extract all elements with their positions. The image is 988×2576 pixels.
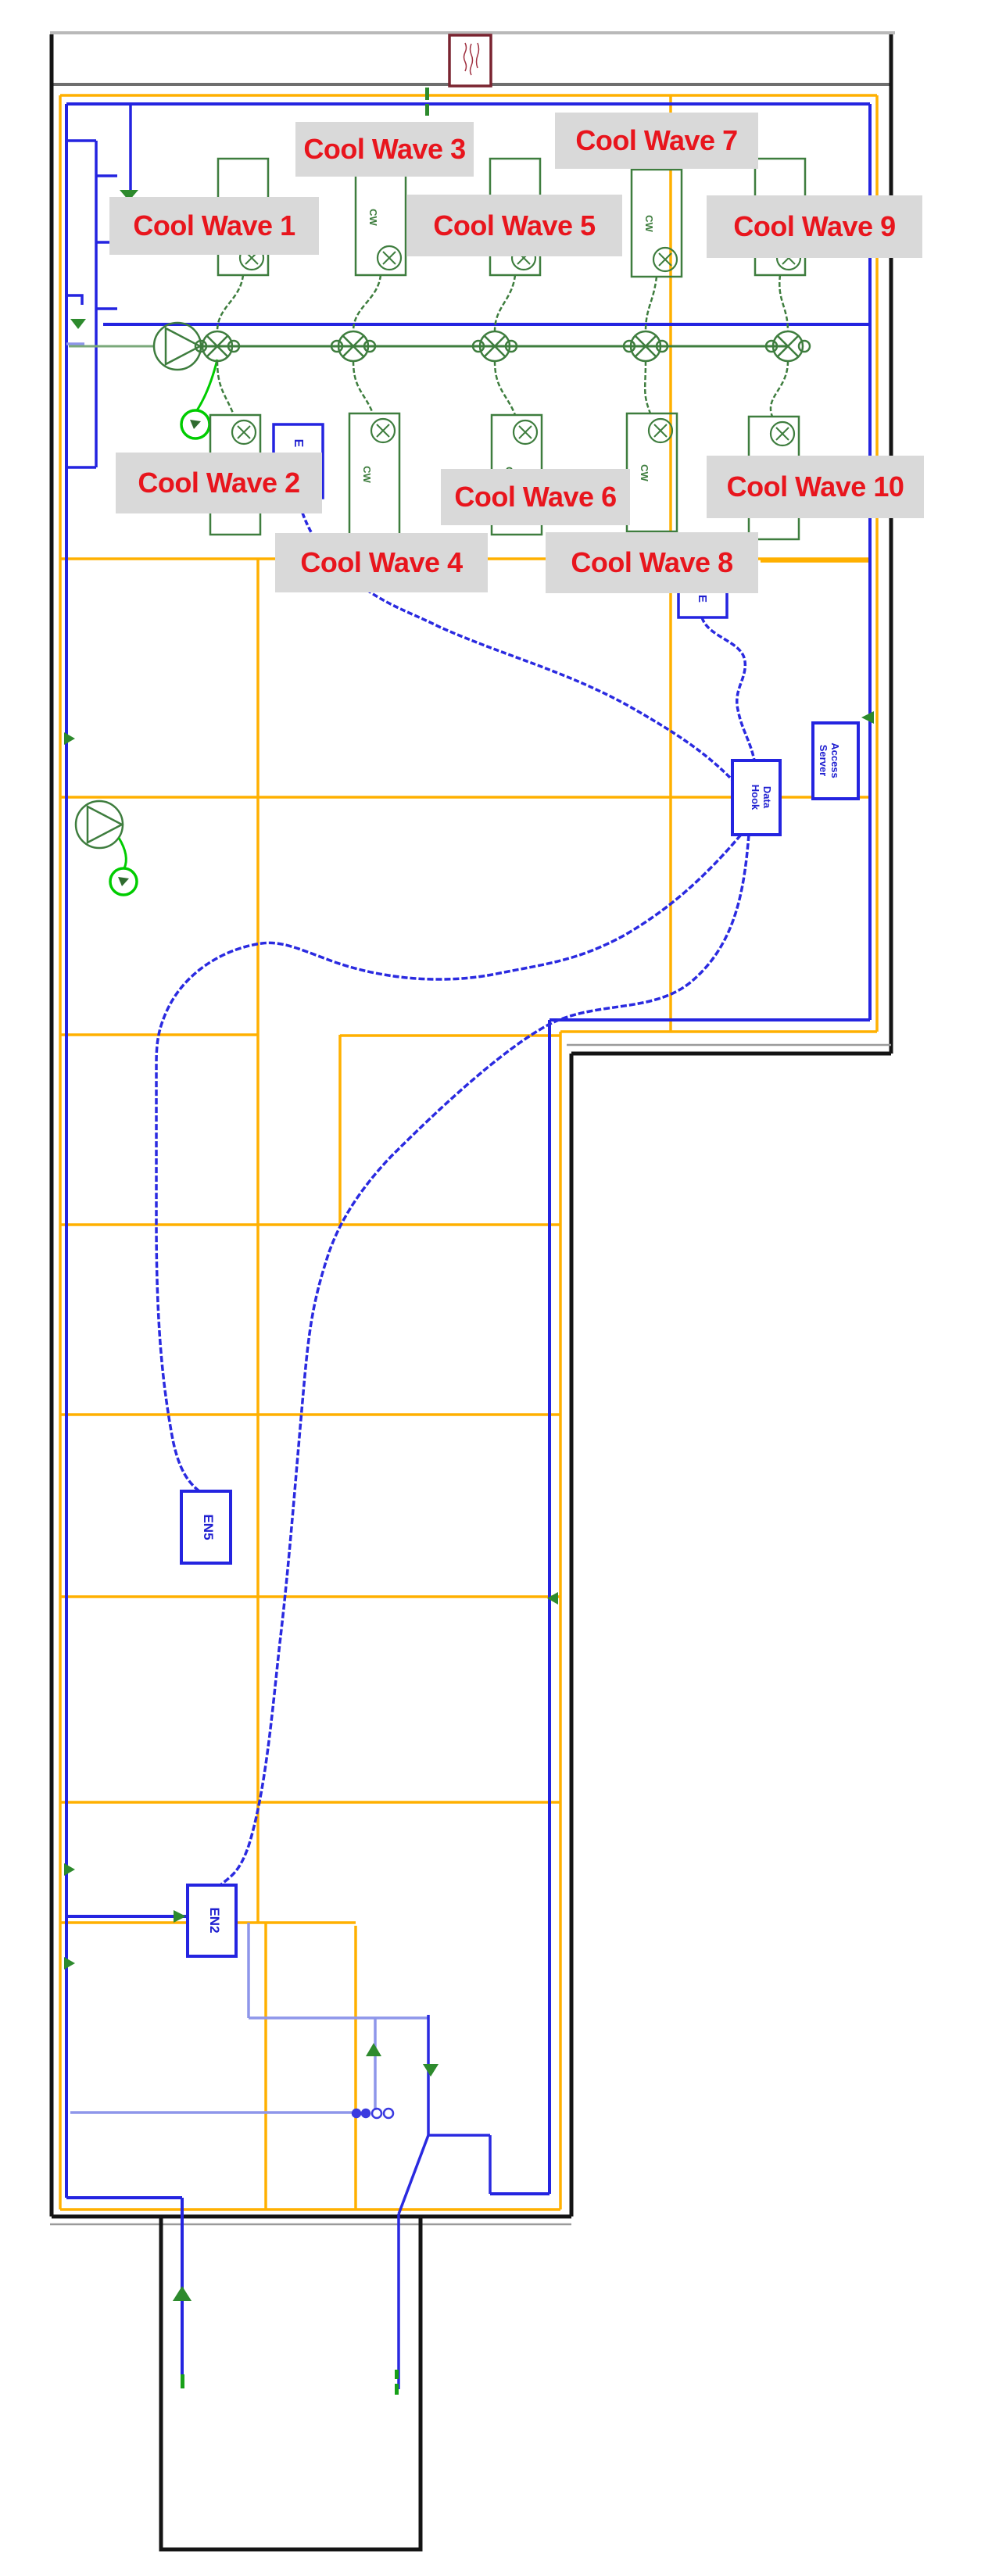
pump-icon	[154, 323, 201, 370]
flow-sensor-icon	[110, 868, 137, 895]
cable-bead-cluster	[353, 2109, 393, 2118]
arrow-right-icon	[64, 1957, 75, 1970]
arrow-right-icon	[64, 732, 75, 745]
en5-label: EN5	[201, 1514, 216, 1540]
e-box: E	[274, 424, 323, 498]
wall-equipment-tag	[449, 35, 491, 86]
cable-datahook-to-en5	[156, 835, 741, 1491]
cw-unit-label: CW	[502, 209, 514, 226]
cw-unit-label: CW	[503, 467, 515, 484]
e-box-2: E	[678, 580, 727, 617]
floor-plan-drawing: CWCWCWCWCWCWCWCWCWCW E E DataHook	[0, 0, 988, 2576]
green-tick	[395, 2384, 399, 2395]
pipe-junction-icon	[766, 331, 810, 361]
pipe-junction-icon	[624, 331, 668, 361]
en2-label: EN2	[207, 1907, 222, 1933]
pipe-junction-icon	[195, 331, 239, 361]
cw-unit-label: CW	[367, 209, 379, 226]
arrow-up-icon	[173, 2286, 192, 2301]
cool-wave-unit-box: CW	[210, 361, 260, 535]
cable-box-to-datahook	[702, 617, 754, 760]
control-boxes: E E DataHook AccessServer EN5 EN2	[181, 424, 858, 1956]
en5-box: EN5	[181, 1491, 231, 1563]
cable-e-to-datahook	[298, 498, 732, 780]
cw-unit-label: CW	[643, 215, 655, 232]
data-hook-label: DataHook	[750, 785, 773, 810]
cw-unit-label: CW	[639, 464, 650, 481]
green-tick	[425, 88, 429, 100]
riser-comb	[66, 104, 131, 467]
cool-wave-unit-box: CW	[749, 361, 799, 539]
pipe-junction-icon	[331, 331, 375, 361]
cw-unit-label: CW	[767, 209, 779, 226]
cool-wave-unit-box: CW	[490, 159, 540, 331]
room-partitions	[60, 95, 877, 2209]
e-box-label: E	[292, 439, 305, 448]
access-server-box: AccessServer	[813, 723, 858, 799]
arrow-down-icon	[70, 319, 86, 329]
green-tick	[395, 2370, 399, 2379]
cool-wave-unit-box: CW	[217, 159, 268, 331]
arrow-down-icon	[423, 2064, 439, 2077]
cable-bottom-right	[399, 2015, 490, 2389]
arrow-left-icon	[861, 711, 874, 724]
cool-wave-unit-box: CW	[349, 361, 399, 535]
green-tick	[181, 2374, 184, 2388]
floor-plan-canvas: CWCWCWCWCWCWCWCWCWCW E E DataHook	[0, 0, 988, 2576]
cool-wave-unit-box: CW	[755, 159, 805, 331]
cable-lightblue-run	[70, 1923, 428, 2113]
cool-wave-unit-box: CW	[492, 361, 542, 535]
flow-sensor-icon	[181, 410, 209, 438]
cw-unit-label: CW	[761, 470, 772, 487]
data-hook-box: DataHook	[732, 760, 780, 835]
cw-unit-label: CW	[222, 467, 234, 484]
access-server-label: AccessServer	[818, 742, 841, 778]
cool-wave-unit-box: CW	[632, 170, 682, 331]
e-box-2-label: E	[696, 595, 709, 603]
arrow-down-icon	[120, 190, 138, 201]
pump-icon	[76, 801, 123, 848]
en2-box: EN2	[188, 1885, 236, 1956]
green-tick	[425, 104, 429, 116]
arrow-right-icon	[64, 1863, 75, 1876]
building-walls	[50, 33, 895, 2549]
pipe-junction-icon	[473, 331, 517, 361]
cw-unit-label: CW	[230, 209, 242, 226]
arrow-up-icon	[366, 2043, 381, 2056]
arrow-right-icon	[174, 1910, 186, 1923]
cw-unit-label: CW	[361, 466, 373, 483]
cool-wave-unit-box: CW	[353, 159, 406, 331]
